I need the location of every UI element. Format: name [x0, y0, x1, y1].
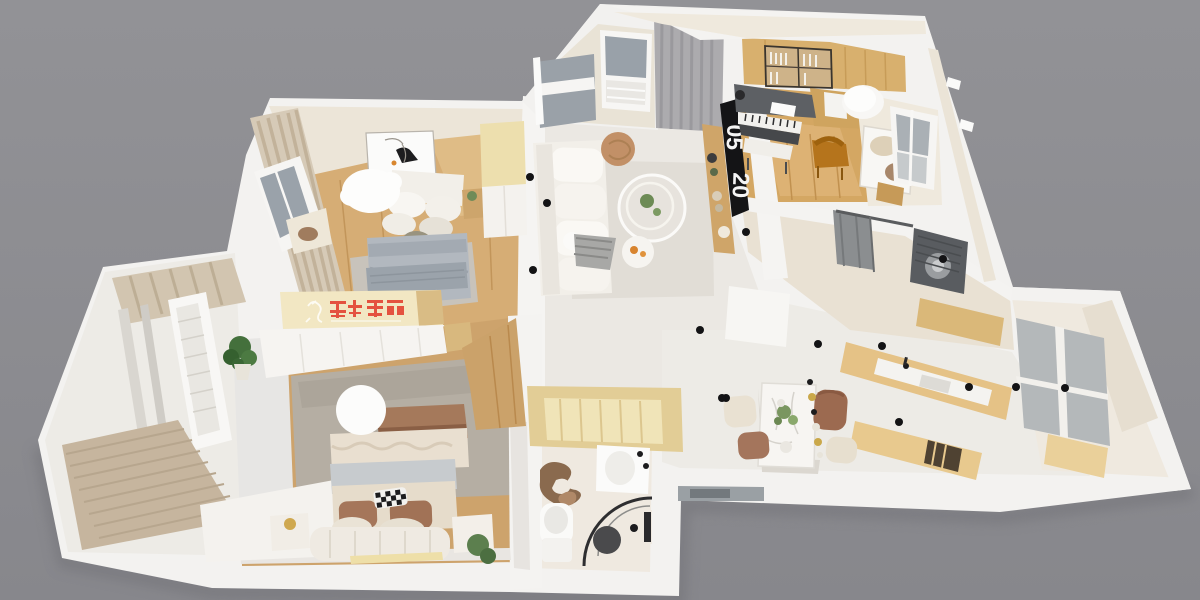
- svg-text:20: 20: [728, 172, 755, 198]
